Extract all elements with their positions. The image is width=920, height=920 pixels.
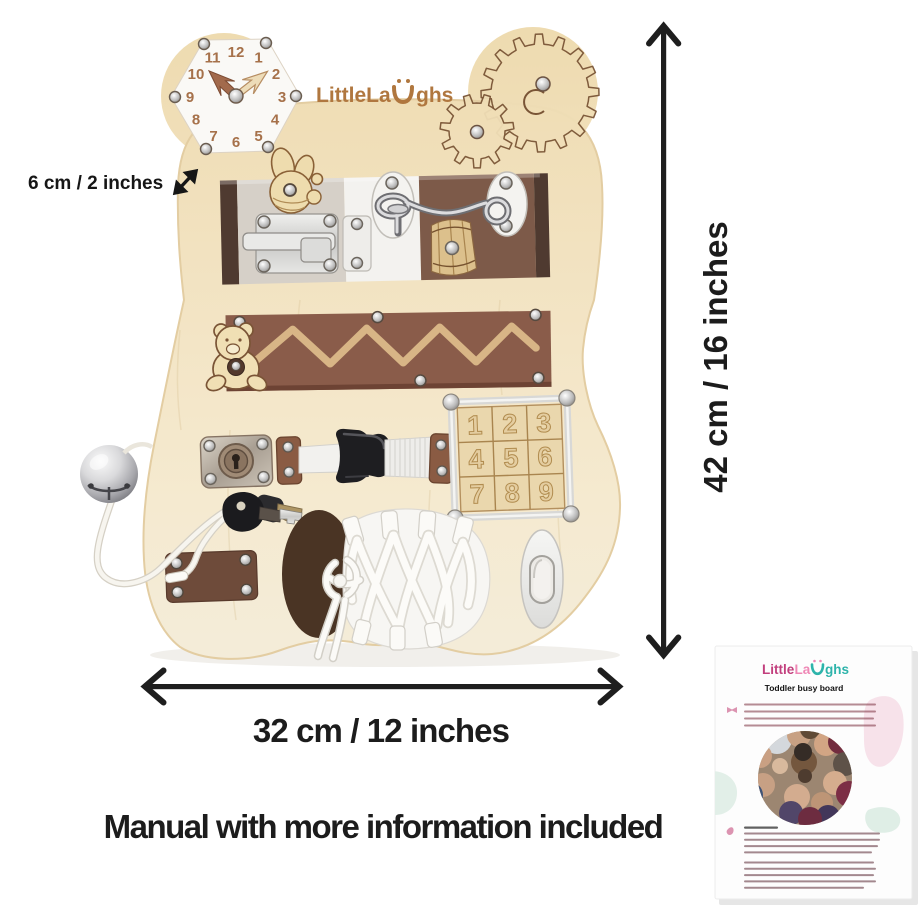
svg-text:3: 3 [278, 89, 286, 106]
svg-text:3: 3 [536, 408, 552, 439]
svg-text:Little: Little [762, 662, 795, 677]
svg-text:6 cm / 2 inches: 6 cm / 2 inches [28, 173, 163, 194]
svg-text:La: La [795, 662, 811, 677]
svg-text:Toddler busy board: Toddler busy board [765, 683, 844, 693]
svg-text:32 cm / 12 inches: 32 cm / 12 inches [253, 712, 509, 749]
svg-text:6: 6 [537, 442, 553, 473]
svg-text:2: 2 [272, 66, 280, 83]
svg-text:6: 6 [232, 134, 240, 151]
svg-text:10: 10 [188, 66, 205, 83]
svg-text:11: 11 [205, 50, 221, 67]
svg-text:LittleLa: LittleLa [316, 84, 391, 107]
svg-text:5: 5 [254, 128, 262, 145]
svg-text:1: 1 [467, 410, 483, 441]
svg-text:5: 5 [503, 443, 519, 474]
svg-text:9: 9 [186, 89, 194, 106]
svg-text:4: 4 [468, 444, 484, 475]
svg-text:7: 7 [209, 128, 217, 145]
svg-text:7: 7 [469, 479, 485, 510]
svg-text:8: 8 [192, 112, 200, 129]
svg-text:ghs: ghs [825, 662, 849, 677]
svg-text:9: 9 [538, 477, 554, 508]
svg-text:42 cm / 16 inches: 42 cm / 16 inches [697, 221, 734, 493]
svg-text:Manual with more information i: Manual with more information included [104, 808, 663, 845]
svg-text:1: 1 [254, 50, 262, 67]
svg-text:2: 2 [502, 409, 518, 440]
svg-text:4: 4 [271, 112, 280, 129]
svg-text:8: 8 [504, 478, 520, 509]
svg-text:ghs: ghs [416, 84, 453, 107]
svg-text:12: 12 [228, 44, 245, 61]
